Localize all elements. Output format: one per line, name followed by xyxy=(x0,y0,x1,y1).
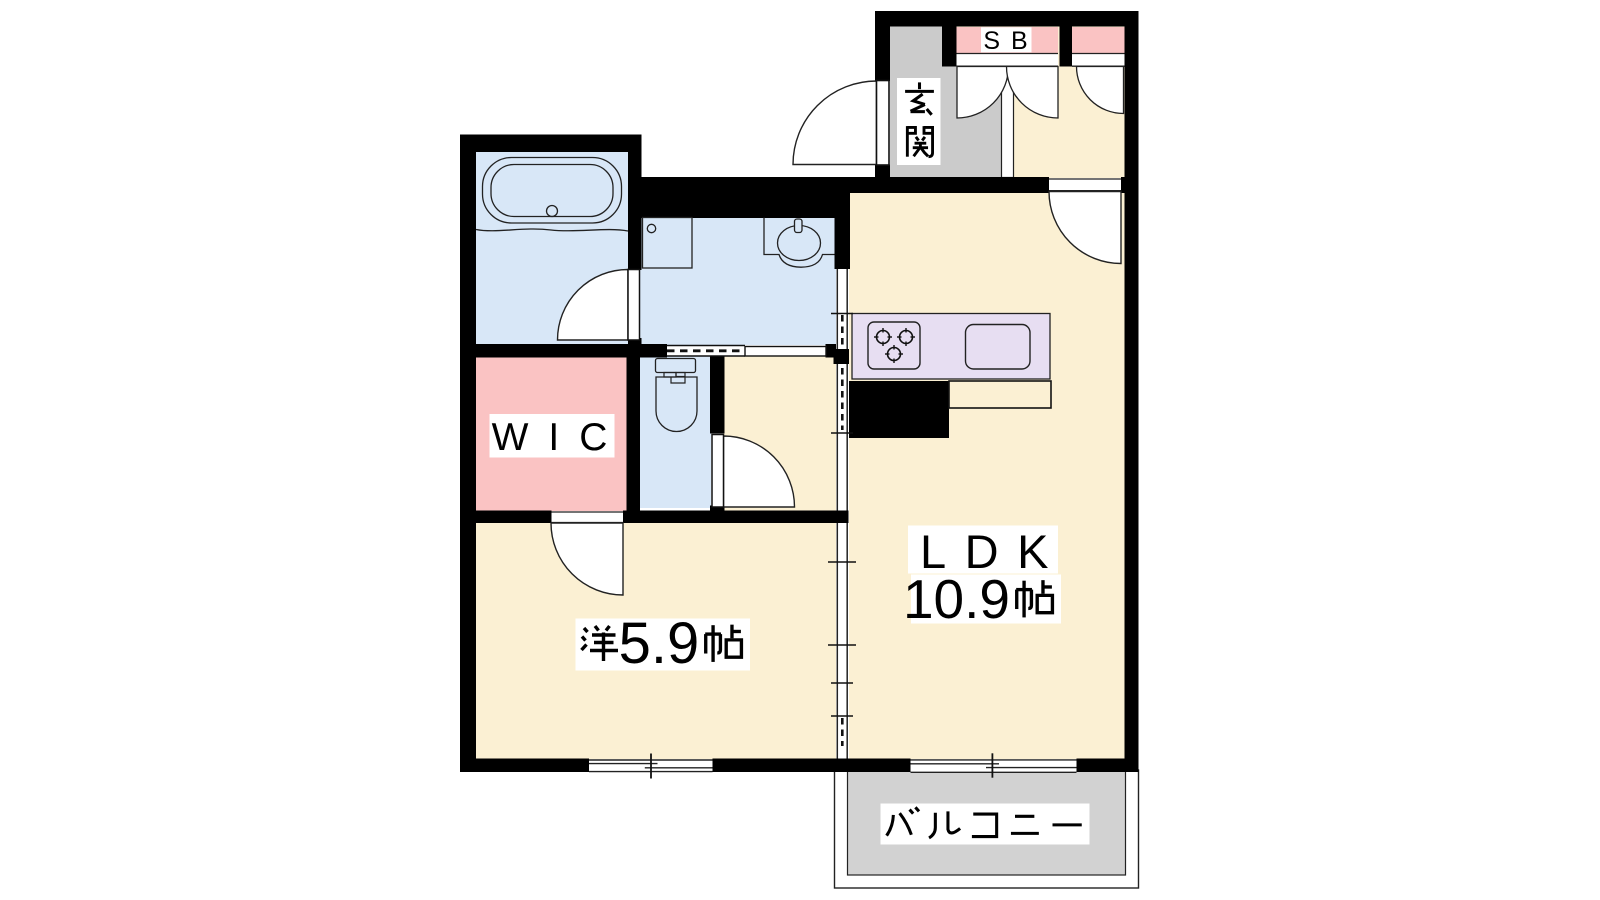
svg-text:10.9: 10.9 xyxy=(903,568,1010,630)
svg-text:5.9: 5.9 xyxy=(619,611,700,676)
svg-text:WIC: WIC xyxy=(492,416,628,459)
svg-text:SB: SB xyxy=(983,27,1038,55)
